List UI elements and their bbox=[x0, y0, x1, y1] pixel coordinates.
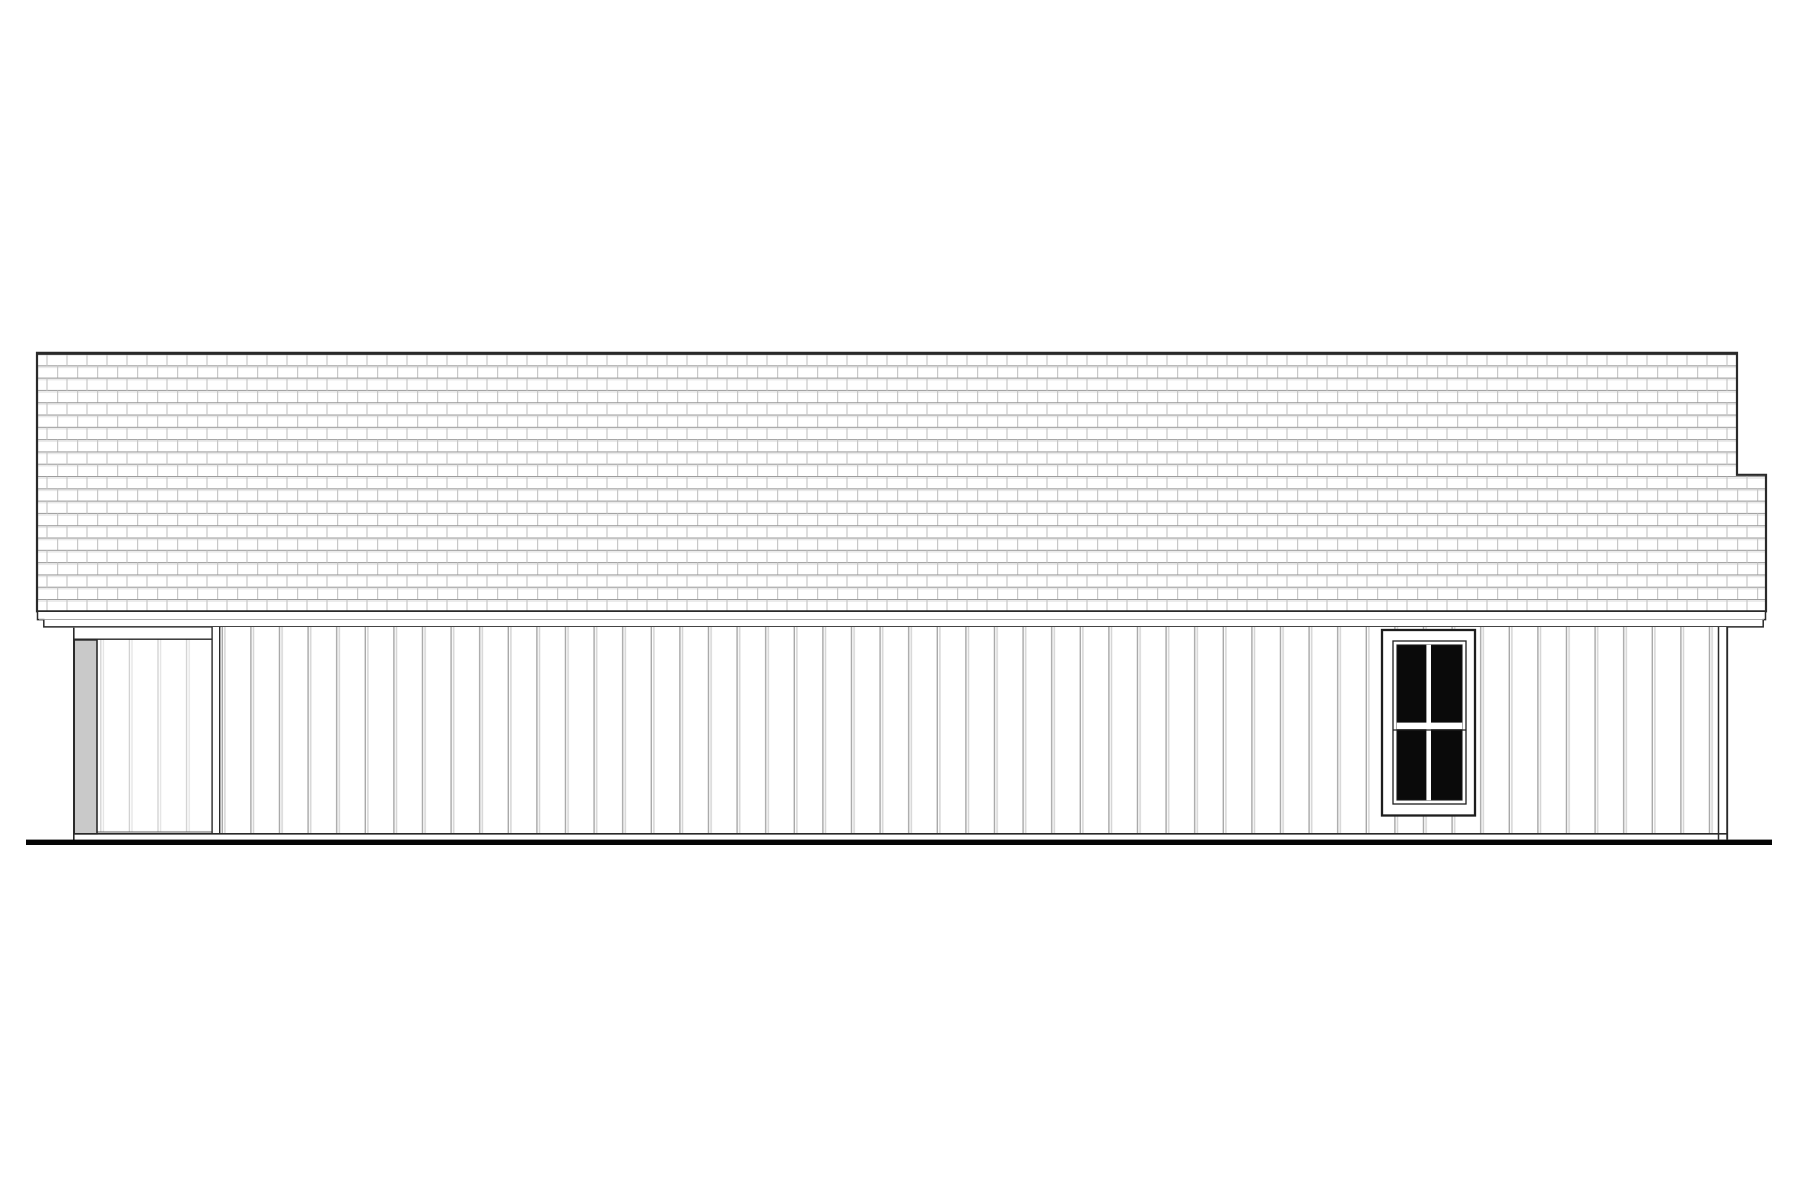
window-muntin-vertical bbox=[1426, 645, 1431, 800]
ground-grade-line bbox=[26, 840, 1772, 845]
elevation-drawing bbox=[0, 0, 1800, 1200]
corner-board-face bbox=[212, 627, 220, 834]
porch-back-wall-siding bbox=[97, 640, 212, 832]
roof bbox=[36, 353, 1766, 612]
fascia-board bbox=[38, 611, 1766, 627]
porch-header-beam bbox=[74, 628, 212, 639]
left-corner-board bbox=[212, 627, 220, 834]
corner-board-face bbox=[1718, 627, 1727, 839]
roof-shingle-field bbox=[37, 353, 1766, 612]
eave-fascia bbox=[38, 611, 1766, 627]
window bbox=[1382, 630, 1475, 816]
porch-bay bbox=[74, 628, 212, 842]
window-meeting-rail bbox=[1397, 723, 1462, 730]
main-wall bbox=[74, 627, 1728, 840]
porch-post bbox=[74, 640, 97, 834]
right-corner-board bbox=[1718, 627, 1727, 840]
elevation-sheet bbox=[0, 0, 1800, 1200]
main-wall-siding bbox=[221, 627, 1719, 834]
